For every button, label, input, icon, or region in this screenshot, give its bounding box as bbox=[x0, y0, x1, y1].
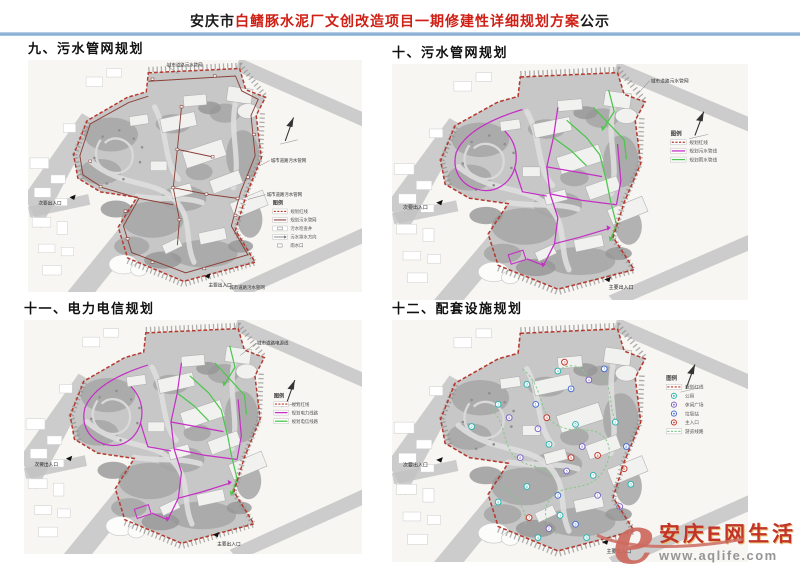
panel-heading: 十一、电力电信规划 bbox=[24, 298, 362, 317]
svg-text:图例: 图例 bbox=[666, 374, 677, 382]
page-title-prefix: 安庆市 bbox=[190, 13, 235, 29]
svg-text:1: 1 bbox=[497, 403, 499, 407]
svg-text:6: 6 bbox=[548, 443, 550, 447]
svg-text:游览线路: 游览线路 bbox=[685, 428, 704, 435]
svg-text:主要出入口: 主要出入口 bbox=[609, 284, 634, 291]
svg-text:规划红线: 规划红线 bbox=[689, 139, 708, 146]
svg-text:雨水口: 雨水口 bbox=[290, 242, 303, 249]
svg-text:5: 5 bbox=[566, 469, 568, 473]
svg-text:规划电信线路: 规划电信线路 bbox=[292, 418, 319, 425]
svg-text:规划红线: 规划红线 bbox=[290, 208, 308, 215]
page-title-red: 白鳍豚水泥厂文创改造项目一期修建性详细规划方案 bbox=[235, 13, 580, 29]
svg-text:次要出入口: 次要出入口 bbox=[38, 200, 62, 207]
svg-text:污水排水方向: 污水排水方向 bbox=[290, 234, 316, 241]
svg-text:城市道路污水管网: 城市道路污水管网 bbox=[229, 284, 265, 291]
svg-text:2: 2 bbox=[548, 527, 550, 531]
svg-text:5: 5 bbox=[575, 423, 577, 427]
svg-text:城市道路污水管网: 城市道路污水管网 bbox=[267, 191, 303, 198]
panel-heading: 九、污水管网规划 bbox=[28, 38, 362, 57]
watermark-text: 安庆E网生活 www.aqlife.com bbox=[659, 518, 796, 565]
svg-text:4: 4 bbox=[546, 416, 548, 420]
page-title: 安庆市白鳍豚水泥厂文创改造项目一期修建性详细规划方案公示 bbox=[0, 0, 800, 31]
svg-text:城市道路电源线: 城市道路电源线 bbox=[257, 340, 289, 347]
svg-text:图例: 图例 bbox=[274, 391, 285, 399]
watermark-swoosh-icon bbox=[595, 531, 745, 551]
svg-text:6: 6 bbox=[508, 416, 510, 420]
svg-text:规划污水管网: 规划污水管网 bbox=[290, 217, 317, 224]
svg-text:7: 7 bbox=[528, 516, 530, 520]
svg-text:主要出入口: 主要出入口 bbox=[217, 540, 241, 547]
svg-text:2: 2 bbox=[471, 425, 473, 429]
svg-text:7: 7 bbox=[603, 367, 605, 371]
svg-text:规划红线: 规划红线 bbox=[685, 384, 704, 391]
svg-text:1: 1 bbox=[597, 494, 599, 498]
svg-text:8: 8 bbox=[625, 445, 627, 449]
svg-text:图例: 图例 bbox=[273, 199, 283, 207]
svg-text:9: 9 bbox=[497, 500, 499, 504]
svg-text:5: 5 bbox=[586, 536, 588, 540]
svg-text:8: 8 bbox=[526, 485, 528, 489]
svg-text:城市道路污水管网: 城市道路污水管网 bbox=[651, 77, 689, 84]
svg-text:规划电力线路: 规划电力线路 bbox=[292, 409, 319, 416]
planning-notice-page: 安庆市白鳍豚水泥厂文创改造项目一期修建性详细规划方案公示 九、污水管网规划 图例… bbox=[0, 0, 800, 565]
svg-text:规划红线: 规划红线 bbox=[292, 401, 310, 408]
svg-text:次要出入口: 次要出入口 bbox=[403, 204, 428, 211]
svg-text:4: 4 bbox=[588, 378, 590, 382]
panel-heading: 十、污水管网规划 bbox=[392, 42, 748, 61]
svg-text:次要出入口: 次要出入口 bbox=[34, 461, 58, 468]
panel-power-telecom-plan-11: 十一、电力电信规划 图例规划红线规划电力线路规划电信线路城市道路电源线次要出入口… bbox=[24, 298, 362, 554]
svg-text:1: 1 bbox=[535, 403, 537, 407]
svg-text:图例: 图例 bbox=[671, 130, 683, 138]
site-plan-svg: 图例规划红线规划污水管网污水检查井污水排水方向雨水口城市道路污水管网城市道路污水… bbox=[28, 60, 362, 292]
site-plan-svg: 图例规划红线规划电力线路规划电信线路城市道路电源线次要出入口主要出入口 bbox=[24, 320, 362, 554]
panel-heading: 十二、配套设施规划 bbox=[392, 298, 748, 317]
svg-text:3: 3 bbox=[526, 383, 528, 387]
svg-text:4: 4 bbox=[537, 536, 539, 540]
svg-text:7: 7 bbox=[537, 427, 539, 431]
svg-text:城市道路污水管网: 城市道路污水管网 bbox=[167, 61, 203, 68]
svg-text:2: 2 bbox=[557, 494, 559, 498]
svg-text:9: 9 bbox=[575, 523, 577, 527]
page-title-suffix: 公示 bbox=[580, 13, 610, 29]
svg-text:污水检查井: 污水检查井 bbox=[290, 225, 312, 232]
svg-text:3: 3 bbox=[630, 483, 632, 487]
svg-text:垃圾站: 垃圾站 bbox=[685, 410, 699, 417]
header-divider bbox=[0, 32, 800, 36]
svg-text:7: 7 bbox=[592, 474, 594, 478]
header: 安庆市白鳍豚水泥厂文创改造项目一期修建性详细规划方案公示 bbox=[0, 0, 800, 36]
svg-text:8: 8 bbox=[597, 454, 599, 458]
site-plan-svg: 图例规划红线规划污水管线规划雨水管线城市道路污水管网次要出入口主要出入口 bbox=[392, 64, 748, 300]
svg-text:8: 8 bbox=[519, 456, 521, 460]
site-plan-map: 图例规划红线规划污水管网污水检查井污水排水方向雨水口城市道路污水管网城市道路污水… bbox=[28, 60, 362, 292]
svg-text:1: 1 bbox=[559, 514, 561, 518]
svg-text:休闲广场: 休闲广场 bbox=[685, 401, 704, 408]
svg-text:规划污水管线: 规划污水管线 bbox=[689, 148, 717, 155]
panel-sewage-plan-9: 九、污水管网规划 图例规划红线规划污水管网污水检查井污水排水方向雨水口城市道路污… bbox=[28, 38, 362, 292]
svg-text:5: 5 bbox=[570, 456, 572, 460]
svg-text:主要出入口: 主要出入口 bbox=[208, 282, 232, 289]
svg-text:3: 3 bbox=[563, 361, 565, 365]
svg-text:次要出入口: 次要出入口 bbox=[403, 462, 428, 469]
svg-text:9: 9 bbox=[581, 445, 583, 449]
svg-text:6: 6 bbox=[570, 387, 572, 391]
svg-text:主入口: 主入口 bbox=[685, 419, 699, 426]
svg-text:6: 6 bbox=[623, 467, 625, 471]
svg-text:规划雨水管线: 规划雨水管线 bbox=[689, 156, 717, 163]
svg-text:城市道路污水管网: 城市道路污水管网 bbox=[271, 157, 307, 164]
watermark: e 安庆E网生活 www.aqlife.com bbox=[613, 517, 796, 565]
panel-sewage-plan-10: 十、污水管网规划 图例规划红线规划污水管线规划雨水管线城市道路污水管网次要出入口… bbox=[392, 42, 748, 300]
site-plan-map: 图例规划红线规划电力线路规划电信线路城市道路电源线次要出入口主要出入口 bbox=[24, 320, 362, 554]
site-plan-map: 图例规划红线规划污水管线规划雨水管线城市道路污水管网次要出入口主要出入口 bbox=[392, 64, 748, 300]
svg-text:4: 4 bbox=[557, 369, 559, 373]
svg-text:2: 2 bbox=[614, 420, 616, 424]
